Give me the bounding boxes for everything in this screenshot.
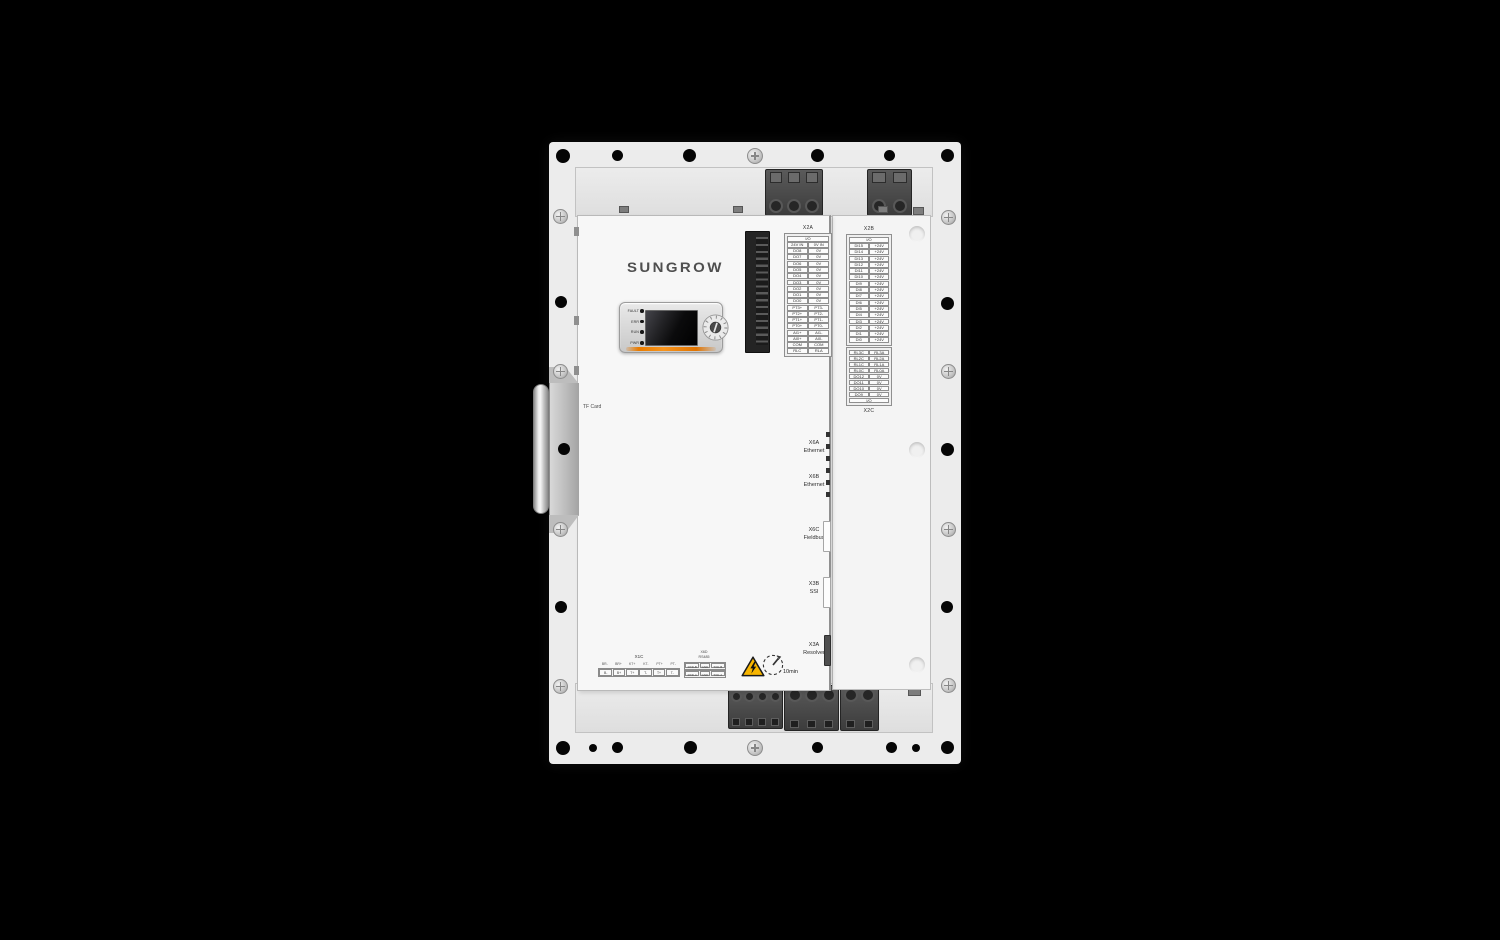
mounting-hole <box>941 149 954 162</box>
led-indicator-icon <box>640 330 644 334</box>
terminal-cell: PT3- <box>808 305 829 311</box>
chassis-clip <box>878 206 888 213</box>
lcd-screen <box>645 310 698 346</box>
terminal-cell: COM <box>808 342 829 348</box>
terminal-cell: B- <box>599 669 612 675</box>
terminal-cell: GND <box>700 671 710 676</box>
chassis-clip <box>913 207 924 215</box>
terminal-cell: 0V <box>869 380 889 386</box>
terminal-cell: PT0+ <box>787 323 808 329</box>
terminal-cell: T- <box>639 669 652 675</box>
terminal-cell: +24V <box>869 306 889 312</box>
led-panel: FAULT ERR RUN PWR <box>623 308 644 346</box>
status-led: RUN <box>623 329 644 335</box>
terminal-cell: TXD-A <box>711 671 725 676</box>
terminal-cell: 0V <box>869 392 889 398</box>
device-render: X2B I/O DI15 +24V DI14 +24V DI13 +24V DI… <box>0 0 1500 940</box>
terminal-cell: T+ <box>626 669 639 675</box>
terminal-cell: DO3 <box>787 280 808 286</box>
status-led: ERR <box>623 319 644 325</box>
terminal-map-x2c: RL3C RL3A RL2C RL2A RL1C RL1A RL0C RL0A … <box>846 347 892 406</box>
terminal-pole <box>891 172 910 213</box>
recessed-screw-hole <box>909 657 925 673</box>
terminal-cell: 0V <box>808 280 829 286</box>
terminal-cell: RL0C <box>849 368 869 374</box>
terminal-cell: DI6 <box>849 300 869 306</box>
terminal-cell: PT0- <box>808 323 829 329</box>
mounting-hole <box>556 149 570 163</box>
mounting-hole <box>684 741 697 754</box>
terminal-cell: 0V <box>808 292 829 298</box>
terminal-cell: DI10 <box>849 274 869 280</box>
terminal-cell: DO5 <box>787 267 808 273</box>
terminal-cell: 0V <box>808 267 829 273</box>
terminal-cell: RL0A <box>869 368 889 374</box>
terminal-cell: +24V <box>869 337 889 343</box>
terminal-row: RXD-A GND TXD-A <box>684 670 726 678</box>
accent-stripe <box>626 347 716 351</box>
terminal-map-x2a: I/O 24V IN 0V IN DO8 0V DO7 0V DO6 0V DO… <box>784 233 832 357</box>
terminal-map-x1c-cells: B-B+T+T-T+T- <box>598 668 680 677</box>
terminal-cell: GND <box>700 663 710 668</box>
terminal-cell: TXD-B <box>711 663 725 668</box>
terminal-cell: +24V <box>869 268 889 274</box>
terminal-cell: +24V <box>869 287 889 293</box>
resolver-connector <box>824 635 831 666</box>
terminal-cell: AI1- <box>808 330 829 336</box>
terminal-cell: DO9 <box>849 392 869 398</box>
terminal-cell: DI9 <box>849 281 869 287</box>
terminal-cell: DO0 <box>787 298 808 304</box>
terminal-cell: +24V <box>869 274 889 280</box>
mounting-hole <box>612 742 623 753</box>
terminal-cell: RL2C <box>849 356 869 362</box>
terminal-pole <box>786 172 802 213</box>
terminal-cell: DI0 <box>849 337 869 343</box>
terminal-cell: RLC <box>787 348 808 354</box>
screw-head <box>941 210 956 225</box>
terminal-cell: DI1 <box>849 331 869 337</box>
hinge-mark <box>574 366 579 375</box>
mounting-hole <box>812 742 823 753</box>
terminal-row: RXD-B GND TXD-B <box>684 662 726 670</box>
mounting-hole <box>912 744 920 752</box>
terminal-pole <box>744 691 755 726</box>
terminal-row: DI0 +24V <box>849 337 890 343</box>
terminal-pole <box>804 688 819 728</box>
status-display-module: FAULT ERR RUN PWR <box>619 302 723 353</box>
connector-pins <box>756 237 768 345</box>
brand-logo: SUNGROW <box>627 259 724 275</box>
mounting-hole <box>886 742 897 753</box>
ribbon-connector <box>745 231 770 353</box>
terminal-map-x2a-label: X2A <box>784 225 832 231</box>
led-label: ERR <box>631 320 639 324</box>
tf-card-label: TF Card <box>583 404 601 410</box>
terminal-pole <box>787 688 802 728</box>
handle-bracket-hole <box>558 443 570 455</box>
terminal-cell: 0V <box>808 286 829 292</box>
power-terminal-block-3pole <box>765 169 823 216</box>
terminal-cell: DI4 <box>849 312 869 318</box>
terminal-cell: T- <box>666 669 679 675</box>
screw-head <box>747 148 763 164</box>
terminal-cell: B+ <box>613 669 626 675</box>
terminal-cell: 0V <box>869 386 889 392</box>
led-label: RUN <box>631 330 639 334</box>
terminal-cell: AI0+ <box>787 336 808 342</box>
terminal-cell: DI2 <box>849 325 869 331</box>
led-label: FAULT <box>628 309 639 313</box>
terminal-label: KT- <box>639 662 653 666</box>
terminal-cell: +24V <box>869 312 889 318</box>
terminal-cell: PT1- <box>808 317 829 323</box>
terminal-cell: +24V <box>869 319 889 325</box>
terminal-cell: +24V <box>869 293 889 299</box>
terminal-cell: DI14 <box>849 249 869 255</box>
terminal-cell: DI3 <box>849 319 869 325</box>
mounting-hole <box>941 601 953 613</box>
screw-head <box>553 209 568 224</box>
table-header: I/O <box>849 237 890 243</box>
terminal-pole <box>768 172 784 213</box>
terminal-cell: RL3A <box>869 350 889 356</box>
terminal-label: KT+ <box>625 662 639 666</box>
terminal-cell: RL3C <box>849 350 869 356</box>
mounting-hole <box>555 601 567 613</box>
ethernet-port-pin <box>826 432 830 437</box>
io-terminal-block-4pole <box>728 688 783 729</box>
screw-head <box>553 522 568 537</box>
terminal-cell: PT3+ <box>787 305 808 311</box>
terminal-cell: COM <box>787 342 808 348</box>
rotary-switch-icon <box>702 314 729 341</box>
chassis-clip <box>619 206 629 213</box>
terminal-cell: DO8 <box>787 248 808 254</box>
fieldbus-connector <box>823 521 831 552</box>
terminal-cell: 0V <box>808 248 829 254</box>
terminal-cell: DO10 <box>849 386 869 392</box>
hinge-mark <box>574 227 579 236</box>
terminal-map-x1c-toprow: BR-BR+KT+KT-PT+PT- <box>598 662 680 666</box>
terminal-cell: DI5 <box>849 306 869 312</box>
terminal-cell: 0V IN <box>808 242 829 248</box>
terminal-cell: +24V <box>869 256 889 262</box>
terminal-cell: +24V <box>869 300 889 306</box>
terminal-cell: 0V <box>808 273 829 279</box>
terminal-cell: +24V <box>869 281 889 287</box>
terminal-cell: +24V <box>869 249 889 255</box>
terminal-pole <box>731 691 742 726</box>
screw-head <box>941 678 956 693</box>
screw-head <box>553 364 568 379</box>
table-header: I/O <box>787 236 830 242</box>
terminal-pole <box>804 172 820 213</box>
led-label: PWR <box>630 341 639 345</box>
terminal-cell: AI0- <box>808 336 829 342</box>
ethernet-port-pin <box>826 468 830 473</box>
power-terminal-block-3pole-bottom <box>784 685 839 731</box>
terminal-label: BR+ <box>612 662 626 666</box>
led-indicator-icon <box>640 320 644 324</box>
status-led: FAULT <box>623 308 644 314</box>
ethernet-port-pin <box>826 444 830 449</box>
led-indicator-icon <box>640 309 644 313</box>
terminal-row: RLC RLA <box>787 348 830 354</box>
terminal-map-x2b-label: X2B <box>846 226 892 232</box>
terminal-cell: +24V <box>869 331 889 337</box>
terminal-cell: DO1 <box>787 292 808 298</box>
terminal-cell: DO7 <box>787 254 808 260</box>
terminal-cell: 0V <box>808 254 829 260</box>
ethernet-port-pin <box>826 492 830 497</box>
recessed-screw-hole <box>909 442 925 458</box>
recessed-screw-hole <box>909 226 925 242</box>
terminal-map-x1c-label: X1C <box>598 654 680 659</box>
mounting-hole <box>555 296 567 308</box>
power-terminal-block-2pole <box>867 169 912 216</box>
terminal-cell: RLA <box>808 348 829 354</box>
mounting-hole <box>941 741 954 754</box>
terminal-cell: PT2+ <box>787 311 808 317</box>
discharge-time-clock-icon <box>761 653 785 677</box>
mounting-hole <box>941 297 954 310</box>
terminal-cell: 0V <box>869 374 889 380</box>
terminal-cell: T+ <box>653 669 666 675</box>
ethernet-port-pin <box>826 480 830 485</box>
chassis-clip <box>733 206 743 213</box>
screw-head <box>747 740 763 756</box>
terminal-cell: PT2- <box>808 311 829 317</box>
terminal-cell: RXD-B <box>685 663 699 668</box>
ssi-connector <box>823 577 831 608</box>
terminal-cell: RL2A <box>869 356 889 362</box>
ethernet-port-pin <box>826 456 830 461</box>
terminal-pole <box>821 688 836 728</box>
terminal-cell: +24V <box>869 243 889 249</box>
terminal-cell: +24V <box>869 325 889 331</box>
terminal-cell: DI8 <box>849 287 869 293</box>
mounting-hole <box>941 443 954 456</box>
table-footer: I/O <box>849 398 890 404</box>
terminal-cell: 0V <box>808 298 829 304</box>
terminal-cell: +24V <box>869 262 889 268</box>
screw-head <box>941 522 956 537</box>
terminal-label: PT- <box>666 662 680 666</box>
terminal-map-x2b: I/O DI15 +24V DI14 +24V DI13 +24V DI12 +… <box>846 234 892 346</box>
terminal-cell: AI1+ <box>787 330 808 336</box>
mounting-hole <box>683 149 696 162</box>
mounting-hole <box>811 149 824 162</box>
terminal-cell: DI7 <box>849 293 869 299</box>
terminal-cell: DO11 <box>849 380 869 386</box>
status-led: PWR <box>623 340 644 346</box>
mounting-hole <box>589 744 597 752</box>
terminal-cell: RL1C <box>849 362 869 368</box>
terminal-cell: PT1+ <box>787 317 808 323</box>
terminal-pole <box>843 688 859 728</box>
terminal-label: BR- <box>598 662 612 666</box>
terminal-cell: DO6 <box>787 261 808 267</box>
discharge-time-label: 10min <box>783 669 798 675</box>
door-handle <box>533 384 549 514</box>
terminal-cell: DI12 <box>849 262 869 268</box>
screw-head <box>553 679 568 694</box>
screw-head <box>941 364 956 379</box>
terminal-cell: DO12 <box>849 374 869 380</box>
terminal-cell: DO2 <box>787 286 808 292</box>
terminal-map-x6d: RXD-B GND TXD-B RXD-A GND TXD-A <box>684 662 726 678</box>
terminal-map-x2c-label: X2C <box>846 408 892 414</box>
terminal-cell: DI11 <box>849 268 869 274</box>
mounting-hole <box>556 741 570 755</box>
rotary-address-switch <box>702 314 729 341</box>
terminal-cell: DO4 <box>787 273 808 279</box>
terminal-pole <box>757 691 768 726</box>
terminal-cell: 24V IN <box>787 242 808 248</box>
mounting-hole <box>612 150 623 161</box>
terminal-cell: DI15 <box>849 243 869 249</box>
mounting-hole <box>884 150 895 161</box>
terminal-pole <box>770 691 781 726</box>
terminal-label: PT+ <box>653 662 667 666</box>
terminal-cell: 0V <box>808 261 829 267</box>
power-terminal-block-2pole-bottom <box>840 685 879 731</box>
terminal-pole <box>861 688 877 728</box>
terminal-cell: RXD-A <box>685 671 699 676</box>
terminal-cell: RL1A <box>869 362 889 368</box>
terminal-cell: DI13 <box>849 256 869 262</box>
terminal-map-x6d-sublabel: RS485 <box>684 655 724 660</box>
led-indicator-icon <box>640 341 644 345</box>
hinge-mark <box>574 316 579 325</box>
